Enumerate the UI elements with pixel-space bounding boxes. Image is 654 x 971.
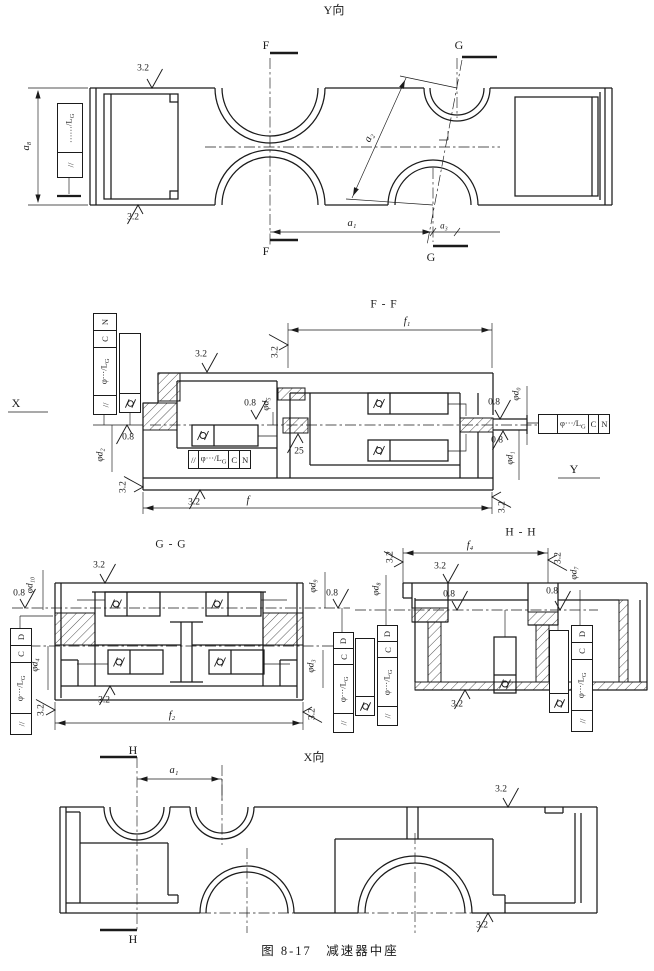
roughness-value: 0.8 [326,589,338,599]
roughness-value: 3.2 [271,346,281,358]
dim-d1: φd₁ [506,451,516,464]
section-letter-g-top: G [455,39,464,51]
dim-arrow [272,229,281,234]
axis-label-y: Y [570,463,579,475]
axis-label-x: X [12,397,21,409]
dim-arrow [145,505,154,510]
dim-arrow [212,776,221,781]
dim-d8: φd₈ [372,582,382,595]
tolerance-frame-cd-hh-right: D C φ···/LG // [571,625,593,732]
dim-arrow [538,550,547,555]
roughness-value: 3.2 [434,562,446,572]
cylindricity-icon [111,600,122,609]
roughness-value: 3.2 [127,213,139,223]
roughness-value: 3.2 [188,498,200,508]
parallelism-icon: // [100,403,110,408]
roughness-value: 3.2 [137,64,149,74]
section-letter-f-top: F [263,39,270,51]
parallelism-icon: // [16,722,26,727]
section-letter-h-top: H [129,744,138,756]
cylindricity-icon [374,446,385,455]
parallelism-icon: // [577,719,587,724]
roughness-value: 3.2 [495,785,507,795]
figure-caption: 图 8-17 减速器中座 [261,945,399,958]
view-y-top [28,53,612,246]
dim-arrow [35,195,40,204]
roughness-value: 3.2 [93,561,105,571]
dim-f: f [247,496,250,507]
roughness-value: 25 [294,447,304,457]
dim-f1: f₁ [404,317,411,328]
roughness-value: 3.2 [476,921,488,931]
tolerance-frame-parallel-y: ……/LG // [57,103,83,178]
dim-d2: φd₂ [96,448,106,461]
dim-d7: φd₇ [570,566,580,579]
roughness-value: 0.8 [546,587,558,597]
roughness-value: 3.2 [98,696,110,706]
dim-d9: φd₉ [309,579,319,592]
dim-arrow [293,720,302,725]
dim-a-total: a₈ [22,142,33,151]
dim-a3: a₃ [440,222,448,231]
roughness-value: 0.8 [443,590,455,600]
dim-d3: φd₃ [307,659,317,672]
section-letter-g-bottom: G [427,251,436,263]
dim-d5: φd₅ [262,397,272,410]
surface-roughness-icon [147,69,163,88]
cylindricity-icon [114,658,125,667]
tolerance-frame-cn-right: φ···/LG C N [538,414,610,434]
cylindricity-icon [215,658,226,667]
view-x-bottom [60,757,597,933]
dim-d0: φd₀ [512,387,522,400]
tolerance-frame-cd-cluster-2: D C φ···/LG // [377,625,398,726]
roughness-value: 0.8 [491,436,503,446]
engineering-drawing-page: Y向 F F G G a₈ a₁ a₃ a₂ 3.2 3.2 F - F f₁ … [0,0,654,971]
dim-arrow [399,79,407,89]
cylindricity-icon [124,397,137,410]
dim-arrow [139,776,148,781]
tolerance-frame-cylindricity [549,630,569,713]
section-letter-h-bottom: H [129,933,138,945]
tolerance-frame-cn-bottom: // φ···/LG C N [188,450,251,469]
roughness-value: 3.2 [498,501,508,513]
roughness-value: 3.2 [119,481,129,493]
view-hh-section [355,548,647,709]
tolerance-frame-cd-cluster-1: D C φ···/LG // [333,632,354,733]
roughness-value: 0.8 [244,399,256,409]
roughness-value: 0.8 [122,433,134,443]
roughness-value: 0.8 [13,589,25,599]
cylindricity-icon [359,700,372,713]
dim-arrow [482,327,491,332]
tolerance-frame-cd-gg-left: D C φ···/LG // [10,628,32,735]
dim-arrow [482,505,491,510]
dim-arrow [423,229,432,234]
dim-f2: f₂ [169,711,176,722]
drawing-linework [0,0,654,971]
section-title-ff: F - F [370,299,397,311]
roughness-value: 0.8 [488,398,500,408]
parallelism-icon: // [191,455,196,465]
section-letter-f-bottom: F [263,245,270,257]
dim-arrow [351,187,359,197]
roughness-value: 3.2 [451,700,463,710]
dim-d4: φd₄ [31,658,41,671]
dim-arrow [290,327,299,332]
dim-arrow [405,550,414,555]
roughness-value: 3.2 [554,552,564,564]
view-label-x: X向 [304,751,325,763]
parallelism-icon: // [65,163,75,168]
section-title-gg: G - G [155,539,186,551]
tolerance-frame-cylindricity [119,333,141,413]
parallelism-icon: // [382,714,392,719]
dim-arrow [57,720,66,725]
dim-f4: f₄ [467,541,474,552]
cylindricity-icon [212,600,223,609]
roughness-value: 3.2 [37,704,47,716]
view-label-y: Y向 [324,4,345,16]
roughness-value: 3.2 [308,708,318,720]
section-title-hh: H - H [505,527,536,539]
dim-arrow [35,90,40,99]
cylindricity-icon [553,697,566,710]
tolerance-frame-cylindricity [355,638,375,716]
cylindricity-icon [374,399,385,408]
dim-a1: a₁ [348,219,357,230]
parallelism-icon: // [338,721,348,726]
dim-d10: φd₁₀ [26,577,36,594]
roughness-value: 3.2 [195,350,207,360]
tolerance-frame-cn-left: N C φ···/LG // [93,313,117,415]
roughness-value: 3.2 [386,551,396,563]
dim-a1-xview: a₁ [170,766,179,777]
cylindricity-icon [198,431,209,440]
